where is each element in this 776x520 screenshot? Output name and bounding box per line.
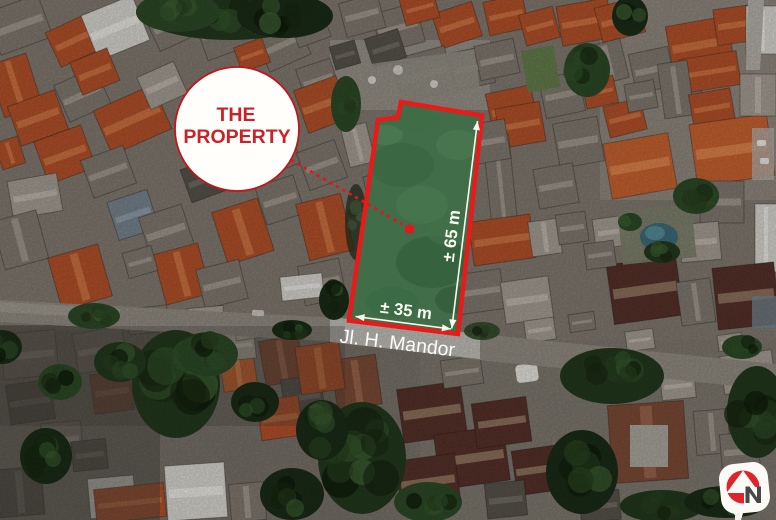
svg-text:THE: THE	[217, 104, 256, 126]
svg-text:PROPERTY: PROPERTY	[183, 126, 290, 148]
